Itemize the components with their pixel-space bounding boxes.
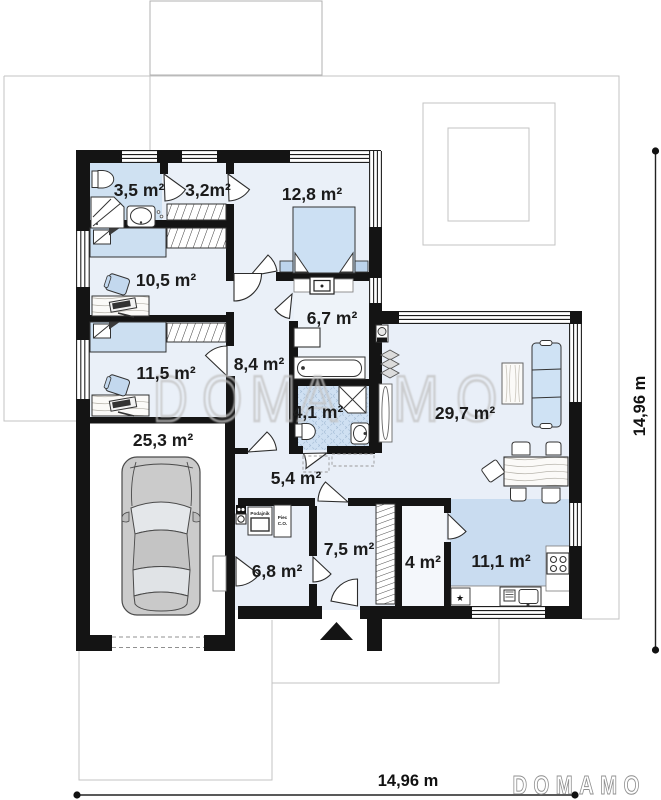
svg-text:O: O: [202, 364, 242, 436]
svg-text:A: A: [298, 363, 338, 436]
svg-text:14,96 m: 14,96 m: [378, 772, 439, 790]
svg-text:★: ★: [456, 593, 464, 603]
svg-text:Podajnik: Podajnik: [250, 511, 270, 516]
svg-text:4,1 m²: 4,1 m²: [293, 402, 344, 422]
svg-text:4 m²: 4 m²: [405, 552, 441, 572]
svg-text:M: M: [393, 362, 439, 435]
svg-text:8,4 m²: 8,4 m²: [234, 354, 285, 374]
svg-text:12,8 m²: 12,8 m²: [282, 184, 342, 204]
svg-text:25,3 m²: 25,3 m²: [133, 430, 193, 450]
svg-text:5,4 m²: 5,4 m²: [271, 468, 322, 488]
svg-text:3,2m²: 3,2m²: [185, 180, 231, 200]
svg-text:6,8 m²: 6,8 m²: [252, 561, 303, 581]
svg-text:10,5 m²: 10,5 m²: [136, 270, 196, 290]
svg-text:11,5 m²: 11,5 m²: [136, 363, 196, 383]
svg-text:6,7 m²: 6,7 m²: [307, 308, 358, 328]
svg-text:Piec: Piec: [278, 515, 288, 520]
svg-text:14,96 m: 14,96 m: [631, 376, 649, 437]
svg-text:7,5 m²: 7,5 m²: [324, 539, 375, 559]
svg-text:C.O.: C.O.: [278, 521, 287, 526]
svg-text:O: O: [456, 362, 497, 435]
svg-text:11,1 m²: 11,1 m²: [471, 551, 531, 571]
svg-text:3,5 m²: 3,5 m²: [114, 180, 165, 200]
svg-text:DOMAMO: DOMAMO: [512, 771, 645, 800]
svg-text:29,7 m²: 29,7 m²: [435, 403, 495, 423]
